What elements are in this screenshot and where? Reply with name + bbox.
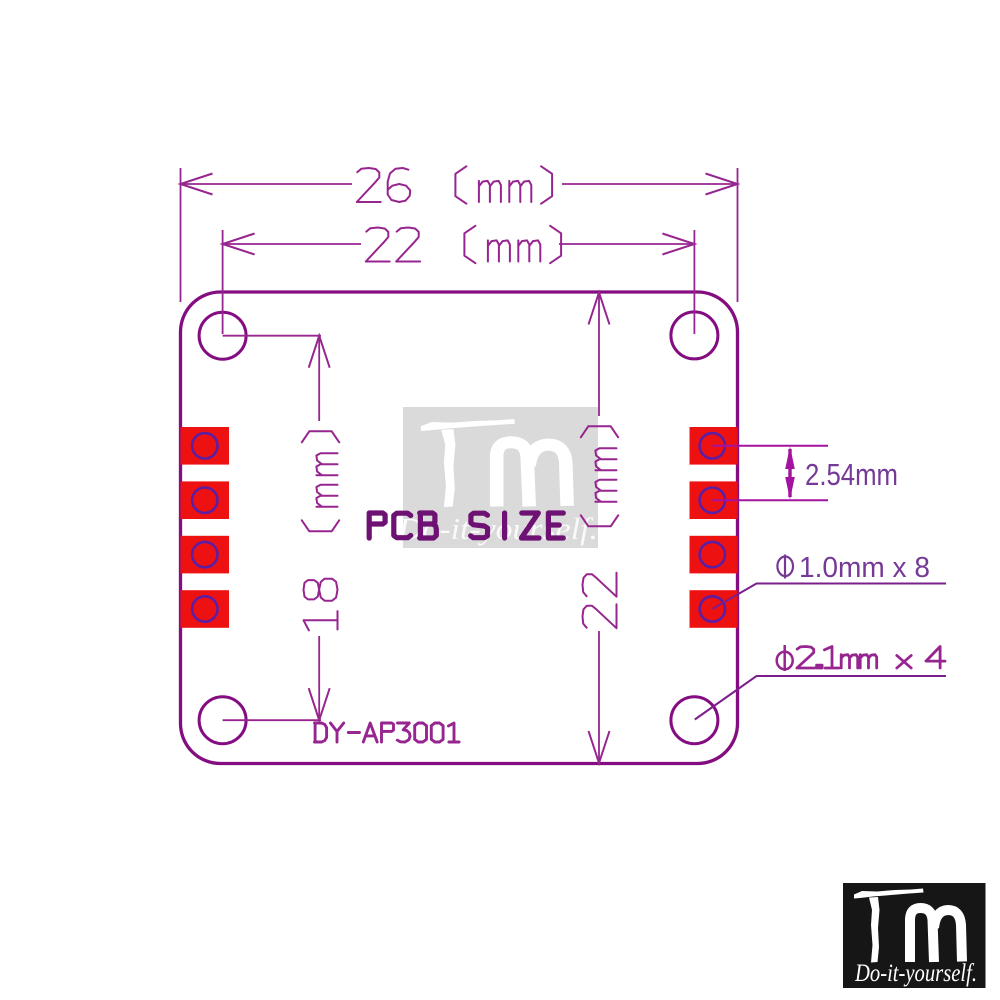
svg-text:Do-it-yourself.: Do-it-yourself.: [854, 960, 977, 987]
svg-text:2.54mm: 2.54mm: [805, 457, 898, 492]
svg-text:1.0mm x 8: 1.0mm x 8: [799, 552, 930, 584]
svg-text:Do-it-yourself.: Do-it-yourself.: [397, 511, 598, 546]
